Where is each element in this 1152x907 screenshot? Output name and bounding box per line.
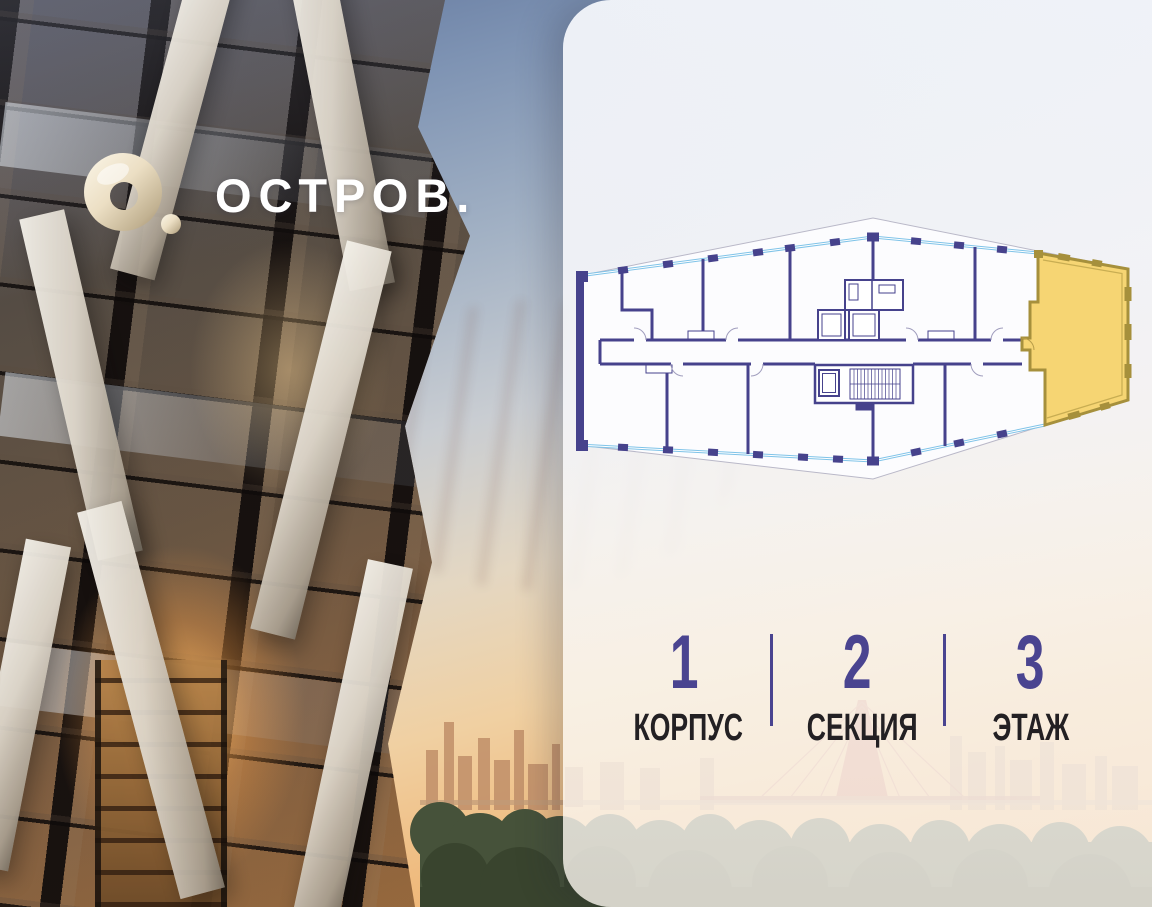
floor-plan bbox=[576, 212, 1136, 482]
info-divider bbox=[770, 634, 773, 726]
corpus-number: 1 bbox=[610, 630, 760, 697]
page: ОСТРОВ. bbox=[0, 0, 1152, 907]
staircase bbox=[850, 369, 900, 399]
info-panel: 1 КОРПУС 2 СЕКЦИЯ 3 ЭТАЖ bbox=[563, 0, 1152, 907]
section-label: СЕКЦИЯ bbox=[783, 709, 933, 747]
brand-logo[interactable]: ОСТРОВ. bbox=[83, 152, 476, 238]
logo-text: ОСТРОВ. bbox=[215, 168, 476, 223]
floor-number: 3 bbox=[956, 630, 1106, 697]
info-divider bbox=[943, 634, 946, 726]
section-number: 2 bbox=[783, 630, 933, 697]
info-corpus: 1 КОРПУС bbox=[610, 630, 760, 747]
info-floor: 3 ЭТАЖ bbox=[956, 630, 1106, 747]
location-info: 1 КОРПУС 2 СЕКЦИЯ 3 ЭТАЖ bbox=[563, 630, 1152, 747]
corpus-label: КОРПУС bbox=[610, 709, 760, 747]
floor-label: ЭТАЖ bbox=[956, 709, 1106, 747]
info-section: 2 СЕКЦИЯ bbox=[783, 630, 933, 747]
logo-mark-icon bbox=[83, 152, 195, 238]
